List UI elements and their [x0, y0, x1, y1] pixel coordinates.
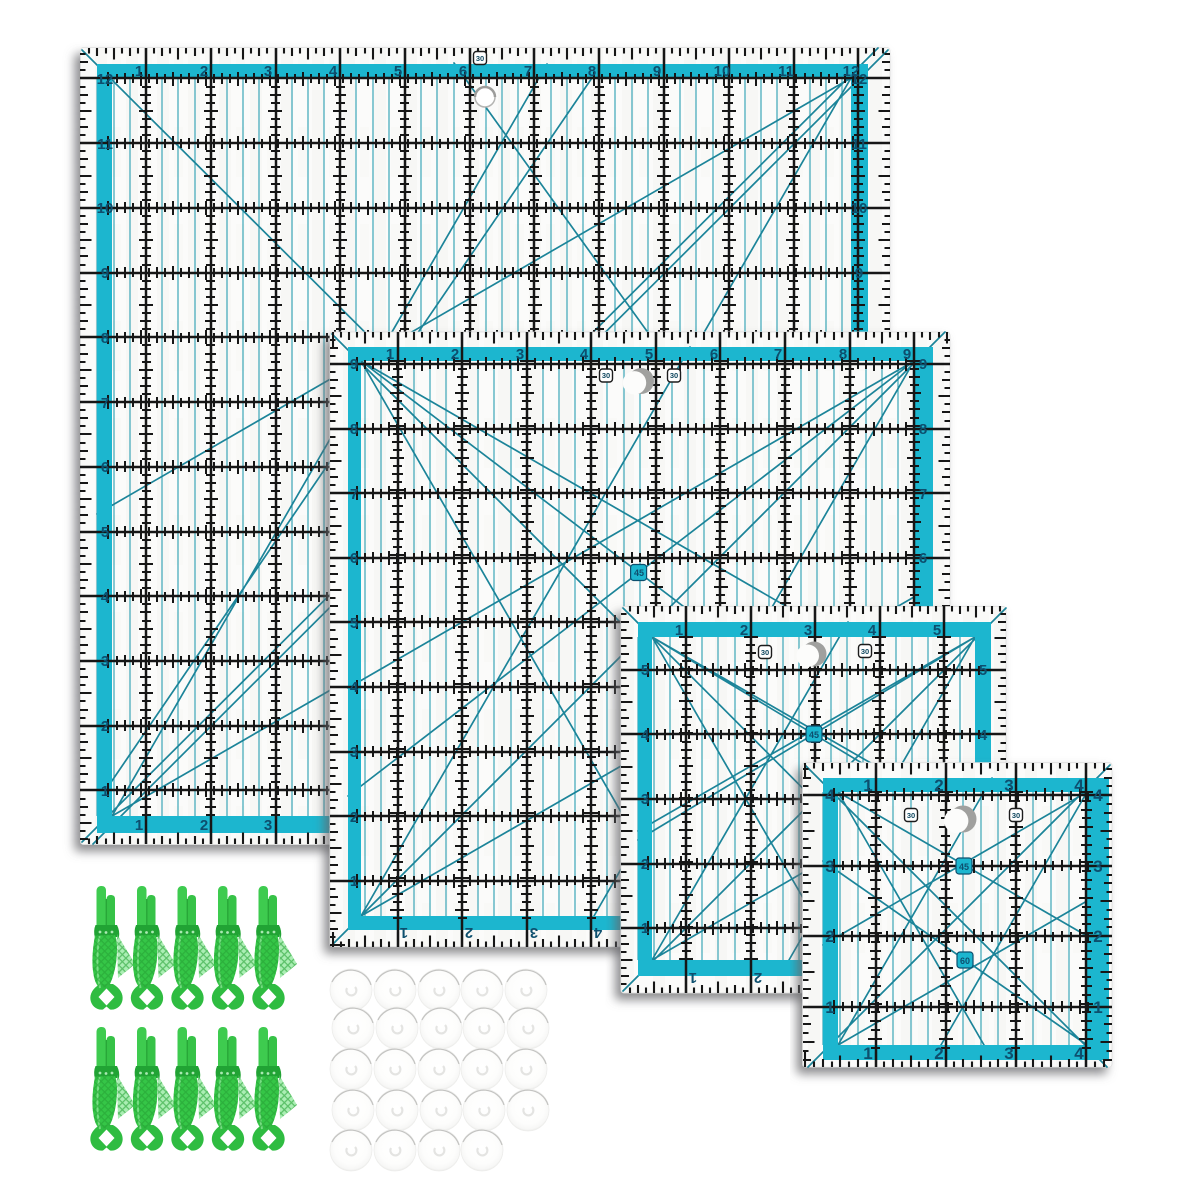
svg-text:4: 4 — [979, 727, 988, 744]
svg-text:1: 1 — [689, 969, 697, 986]
svg-text:7: 7 — [350, 486, 358, 503]
svg-text:45: 45 — [809, 730, 819, 740]
svg-text:3: 3 — [1004, 1044, 1013, 1063]
svg-text:3: 3 — [264, 817, 272, 834]
svg-text:8: 8 — [350, 421, 358, 438]
svg-text:2: 2 — [350, 809, 358, 826]
svg-text:10: 10 — [97, 200, 114, 217]
svg-text:2: 2 — [740, 622, 748, 639]
svg-text:9: 9 — [101, 265, 109, 282]
svg-text:4: 4 — [825, 786, 835, 805]
svg-text:8: 8 — [101, 330, 109, 347]
svg-text:3: 3 — [641, 791, 649, 808]
svg-text:7: 7 — [524, 63, 532, 80]
svg-text:4: 4 — [641, 727, 650, 744]
svg-text:1: 1 — [400, 924, 408, 941]
svg-text:1: 1 — [386, 346, 394, 363]
svg-text:12: 12 — [851, 71, 868, 88]
svg-text:5: 5 — [645, 346, 653, 363]
svg-text:3: 3 — [264, 63, 272, 80]
svg-text:3: 3 — [804, 622, 812, 639]
svg-text:30: 30 — [861, 647, 869, 656]
svg-text:1: 1 — [863, 776, 872, 795]
svg-text:6: 6 — [919, 550, 927, 567]
svg-text:2: 2 — [465, 924, 473, 941]
svg-text:8: 8 — [919, 421, 927, 438]
svg-text:5: 5 — [394, 63, 402, 80]
svg-text:9: 9 — [919, 356, 927, 373]
svg-text:10: 10 — [851, 200, 868, 217]
svg-text:60: 60 — [960, 956, 970, 966]
svg-text:2: 2 — [934, 776, 943, 795]
svg-text:5: 5 — [641, 662, 649, 679]
svg-text:7: 7 — [919, 486, 927, 503]
svg-text:45: 45 — [959, 862, 969, 872]
svg-text:6: 6 — [459, 63, 467, 80]
svg-text:5: 5 — [979, 662, 987, 679]
svg-text:3: 3 — [825, 857, 834, 876]
svg-text:30: 30 — [670, 371, 678, 380]
svg-text:2: 2 — [934, 1044, 943, 1063]
svg-text:3: 3 — [1004, 776, 1013, 795]
svg-text:4: 4 — [1074, 1044, 1084, 1063]
svg-text:2: 2 — [825, 927, 834, 946]
svg-text:3: 3 — [530, 924, 538, 941]
svg-text:4: 4 — [1093, 786, 1103, 805]
svg-text:2: 2 — [754, 969, 762, 986]
svg-text:30: 30 — [476, 54, 484, 63]
svg-text:4: 4 — [868, 622, 877, 639]
svg-text:3: 3 — [350, 744, 358, 761]
svg-text:4: 4 — [350, 679, 359, 696]
svg-text:4: 4 — [593, 924, 602, 941]
svg-text:11: 11 — [778, 63, 794, 80]
svg-text:4: 4 — [1074, 776, 1084, 795]
svg-text:7: 7 — [774, 346, 782, 363]
svg-text:1: 1 — [641, 920, 649, 937]
svg-text:2: 2 — [1093, 927, 1102, 946]
svg-text:1: 1 — [135, 817, 143, 834]
svg-text:9: 9 — [653, 63, 661, 80]
svg-text:1: 1 — [350, 873, 358, 890]
svg-text:5: 5 — [933, 622, 941, 639]
svg-text:9: 9 — [350, 356, 358, 373]
svg-text:5: 5 — [101, 524, 109, 541]
svg-text:30: 30 — [602, 371, 610, 380]
svg-text:1: 1 — [825, 998, 834, 1017]
svg-text:1: 1 — [863, 1044, 872, 1063]
svg-text:10: 10 — [714, 63, 731, 80]
svg-text:6: 6 — [710, 346, 718, 363]
svg-text:2: 2 — [641, 856, 649, 873]
svg-text:8: 8 — [839, 346, 847, 363]
svg-text:11: 11 — [851, 136, 867, 153]
svg-text:2: 2 — [200, 63, 208, 80]
svg-text:9: 9 — [903, 346, 911, 363]
svg-text:1: 1 — [135, 63, 143, 80]
svg-text:30: 30 — [907, 811, 915, 820]
svg-text:2: 2 — [200, 817, 208, 834]
svg-text:3: 3 — [101, 653, 109, 670]
svg-text:45: 45 — [634, 568, 644, 578]
svg-text:12: 12 — [97, 71, 114, 88]
svg-text:9: 9 — [855, 265, 863, 282]
svg-text:4: 4 — [101, 589, 110, 606]
svg-text:6: 6 — [350, 550, 358, 567]
svg-text:3: 3 — [1093, 857, 1102, 876]
svg-text:4: 4 — [329, 63, 338, 80]
svg-text:7: 7 — [101, 395, 109, 412]
svg-text:30: 30 — [1012, 811, 1020, 820]
svg-text:6: 6 — [101, 459, 109, 476]
svg-text:30: 30 — [761, 648, 769, 657]
svg-text:2: 2 — [451, 346, 459, 363]
svg-text:1: 1 — [675, 622, 683, 639]
svg-text:11: 11 — [97, 136, 113, 153]
svg-text:5: 5 — [350, 615, 358, 632]
svg-text:4: 4 — [580, 346, 589, 363]
svg-text:1: 1 — [101, 783, 109, 800]
svg-text:3: 3 — [516, 346, 524, 363]
svg-text:1: 1 — [1093, 998, 1102, 1017]
svg-text:8: 8 — [588, 63, 596, 80]
svg-text:2: 2 — [101, 718, 109, 735]
